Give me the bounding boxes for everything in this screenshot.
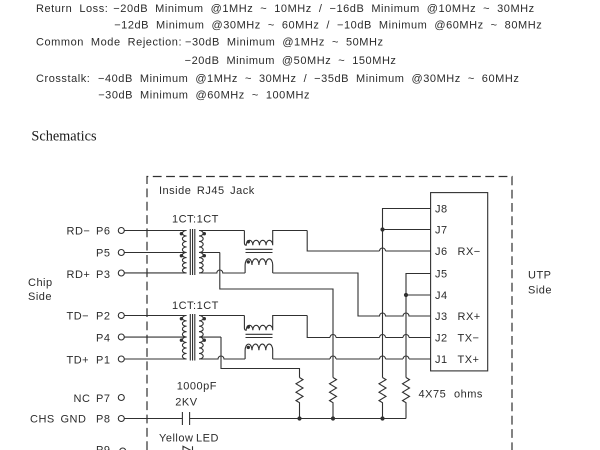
svg-text:UTP: UTP — [528, 270, 552, 282]
svg-text:−20dB Minimum @50MHz ~ 150MHz: −20dB Minimum @50MHz ~ 150MHz — [185, 55, 397, 67]
svg-text:−30dB Minimum @60MHz ~ 100MHz: −30dB Minimum @60MHz ~ 100MHz — [98, 90, 310, 102]
svg-text:P5: P5 — [96, 248, 110, 260]
svg-text:−20dB Minimum @1MHz ~ 10MHz /: −20dB Minimum @1MHz ~ 10MHz / −16dB Mini… — [113, 3, 534, 15]
svg-text:Yellow: Yellow — [159, 433, 193, 445]
svg-text:RX−: RX− — [458, 246, 481, 258]
svg-text:Side: Side — [28, 291, 52, 303]
svg-text:1CT:1CT: 1CT:1CT — [172, 300, 219, 312]
svg-text:4X75: 4X75 — [419, 389, 447, 401]
svg-text:J2: J2 — [435, 333, 448, 345]
svg-text:P8: P8 — [96, 414, 110, 426]
svg-text:P2: P2 — [96, 311, 110, 323]
svg-text:RD−: RD− — [67, 226, 91, 238]
svg-text:RD+: RD+ — [67, 269, 91, 281]
svg-text:J3: J3 — [435, 311, 448, 323]
svg-text:TX+: TX+ — [458, 354, 480, 366]
svg-text:TD−: TD− — [67, 311, 90, 323]
svg-text:Crosstalk:: Crosstalk: — [36, 73, 90, 85]
svg-text:J4: J4 — [435, 290, 448, 302]
svg-text:Side: Side — [528, 285, 552, 297]
svg-text:J7: J7 — [435, 225, 448, 237]
svg-text:J6: J6 — [435, 246, 448, 258]
svg-text:GND: GND — [61, 414, 87, 426]
svg-text:−12dB Minimum @30MHz ~ 60MHz /: −12dB Minimum @30MHz ~ 60MHz / −10dB Min… — [114, 20, 542, 32]
svg-text:Common Mode Rejection:: Common Mode Rejection: — [36, 36, 182, 48]
svg-text:J1: J1 — [435, 354, 448, 366]
svg-text:1CT:1CT: 1CT:1CT — [172, 214, 219, 226]
svg-text:CHS: CHS — [30, 414, 55, 426]
svg-text:P1: P1 — [96, 355, 110, 367]
svg-text:P3: P3 — [96, 269, 110, 281]
svg-text:ohms: ohms — [454, 389, 483, 401]
svg-text:TD+: TD+ — [67, 355, 90, 367]
svg-text:Schematics: Schematics — [31, 128, 97, 144]
svg-text:−30dB Minimum @1MHz ~ 50MHz: −30dB Minimum @1MHz ~ 50MHz — [185, 36, 384, 48]
svg-text:J5: J5 — [435, 269, 448, 281]
svg-text:TX−: TX− — [458, 333, 480, 345]
svg-text:1000pF: 1000pF — [177, 381, 217, 393]
svg-text:RX+: RX+ — [458, 311, 481, 323]
svg-text:LED: LED — [196, 433, 219, 445]
svg-text:Return Loss:: Return Loss: — [36, 3, 108, 15]
svg-text:NC: NC — [74, 393, 91, 405]
svg-text:P7: P7 — [96, 393, 110, 405]
svg-text:P4: P4 — [96, 333, 110, 345]
svg-text:Chip: Chip — [28, 277, 53, 289]
svg-text:J8: J8 — [435, 204, 448, 216]
svg-text:Inside RJ45 Jack: Inside RJ45 Jack — [159, 185, 255, 197]
svg-text:P6: P6 — [96, 226, 110, 238]
svg-text:−40dB Minimum @1MHz ~ 30MHz /: −40dB Minimum @1MHz ~ 30MHz / −35dB Mini… — [98, 73, 519, 85]
svg-text:P9: P9 — [96, 445, 110, 450]
svg-text:2KV: 2KV — [175, 397, 197, 409]
